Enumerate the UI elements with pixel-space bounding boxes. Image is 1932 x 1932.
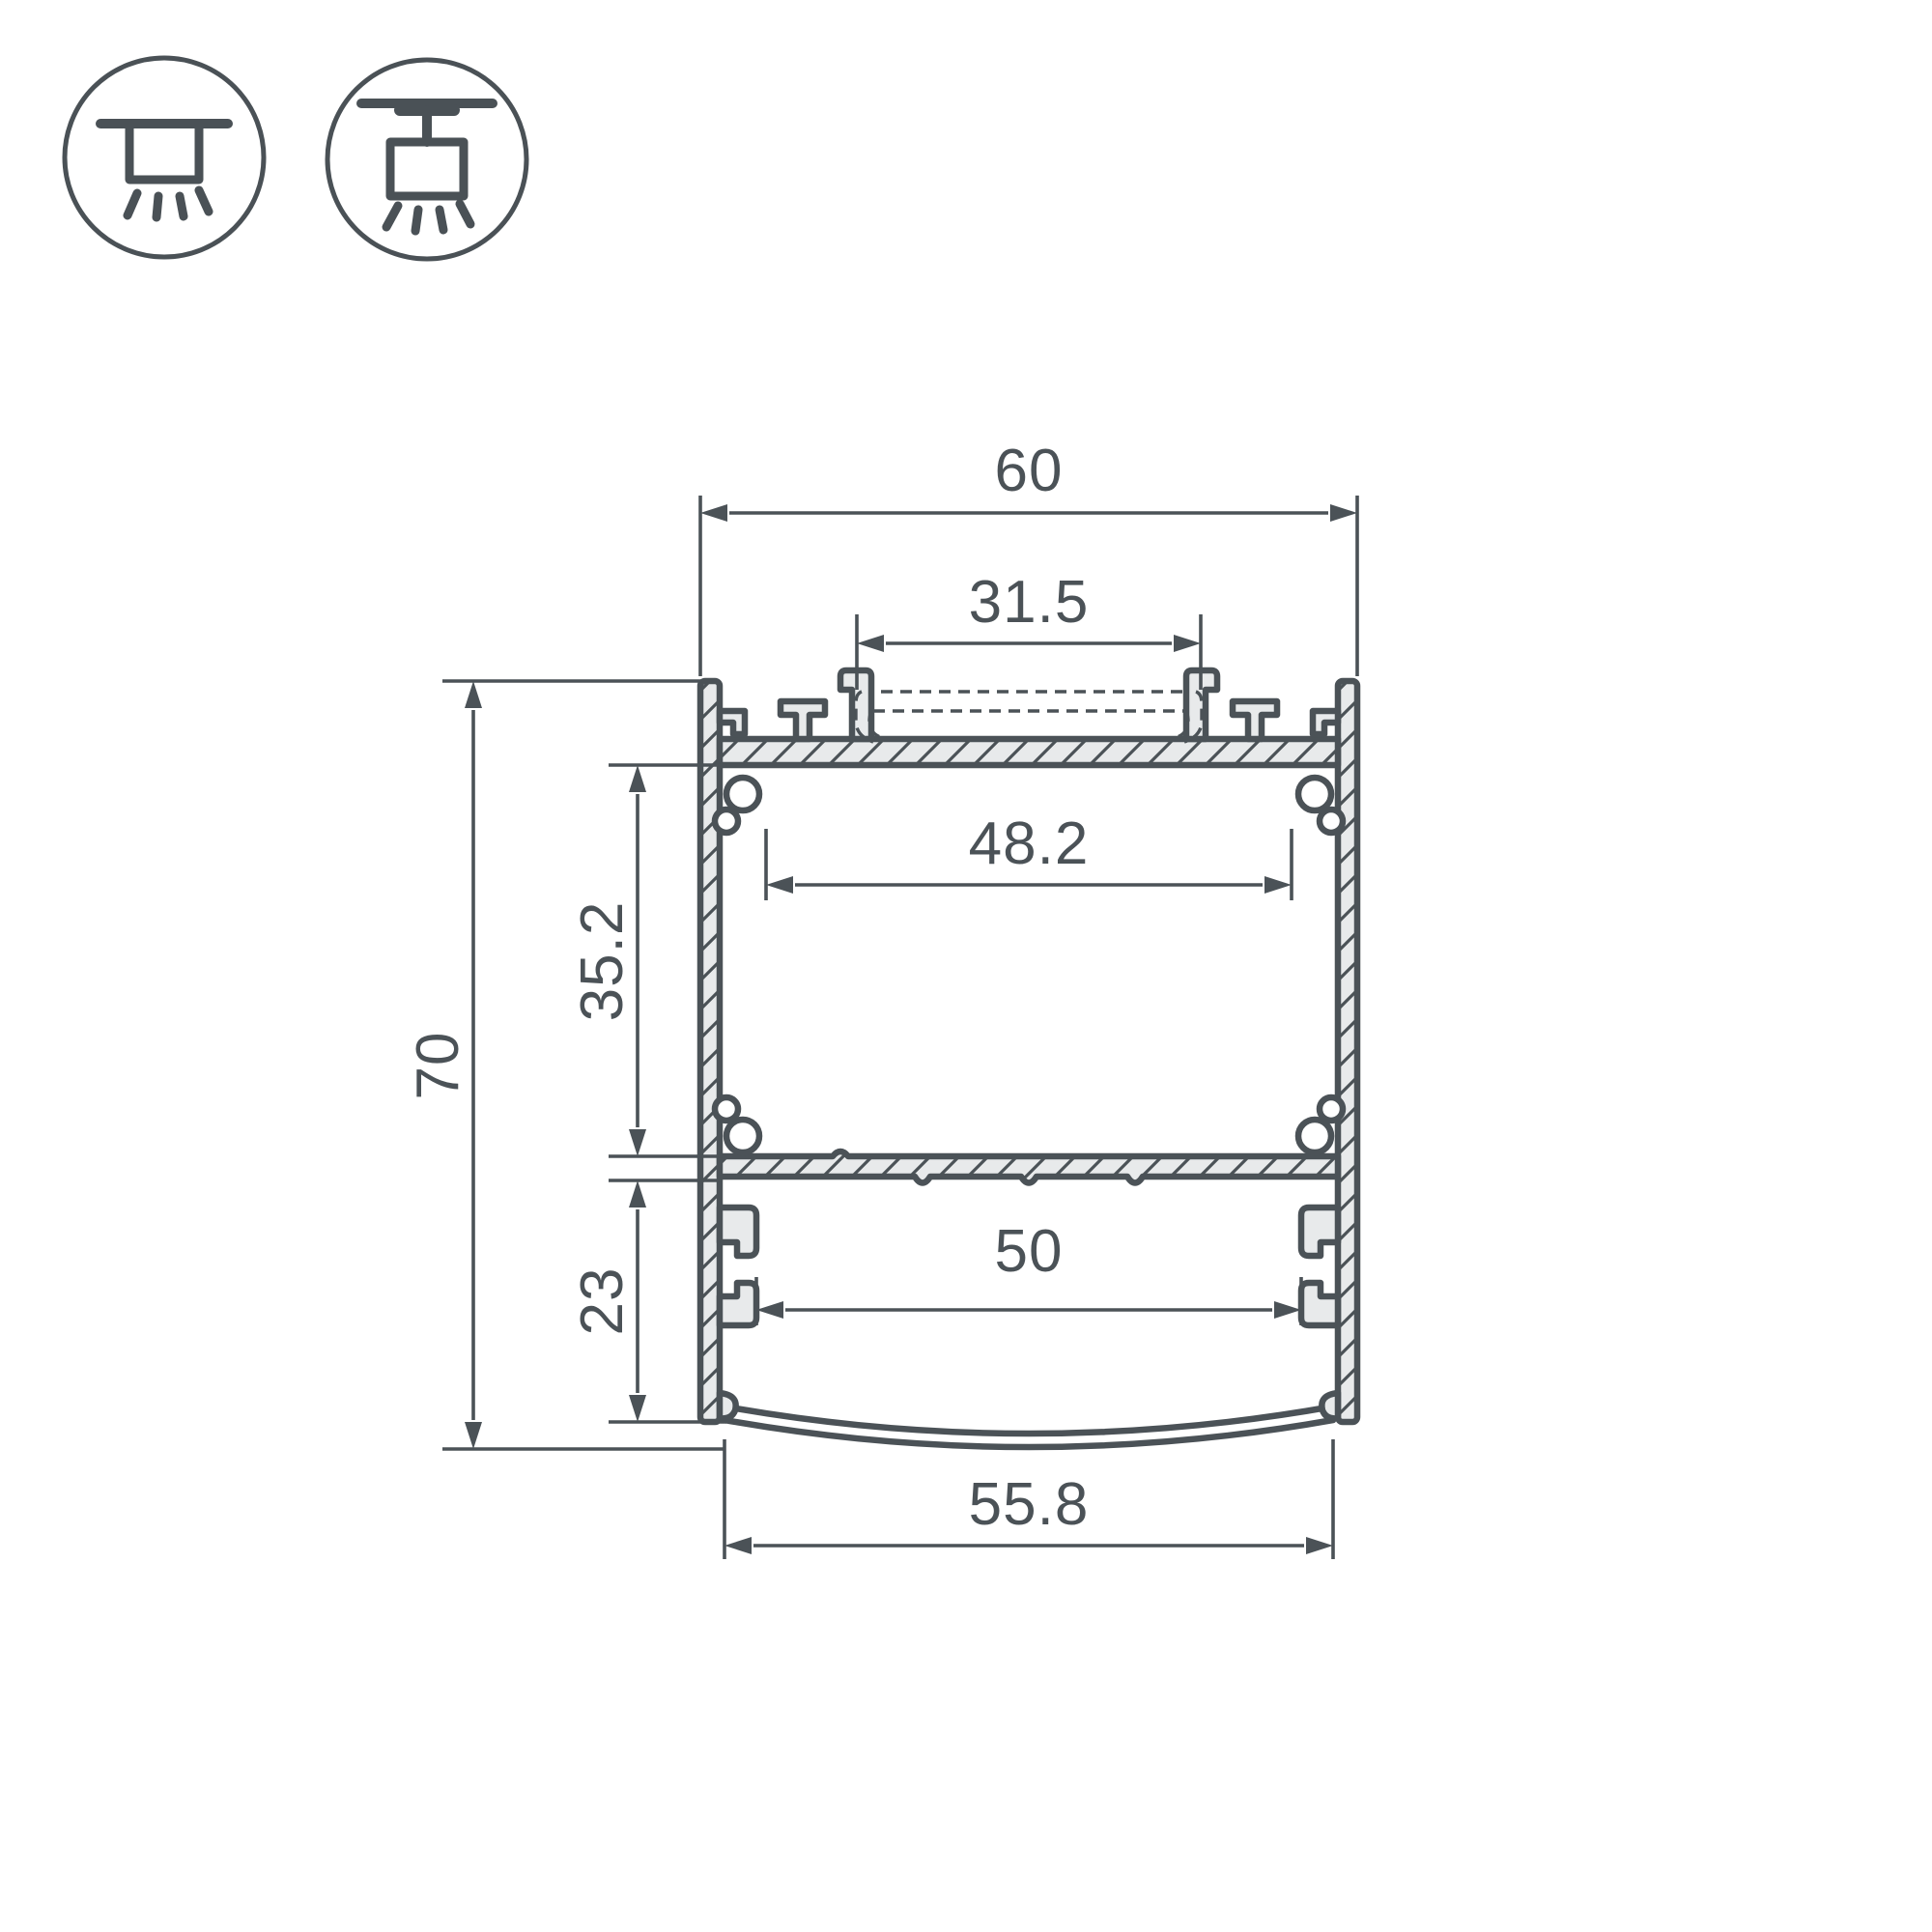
middle-wall: [720, 1151, 1338, 1183]
dimensions: 60 31.5 48.2 50: [405, 438, 1357, 1559]
top-wall: [720, 739, 1338, 765]
dimension-inner-width: 48.2: [766, 810, 1292, 900]
fixture-box: [129, 124, 199, 180]
light-rays: [386, 204, 470, 231]
technical-drawing-svg: 60 31.5 48.2 50: [0, 0, 1932, 1932]
dim-label-50: 50: [995, 1218, 1064, 1285]
dim-label-23: 23: [569, 1267, 636, 1336]
surface-mount-icon: [65, 58, 264, 257]
dimension-lower-slot-width: 50: [756, 1218, 1301, 1325]
dimension-overall-height: 70: [405, 681, 724, 1449]
fixture-box: [390, 142, 464, 196]
dim-label-55-8: 55.8: [969, 1471, 1090, 1538]
profile-cross-section: [700, 670, 1357, 1447]
dim-label-35-2: 35.2: [569, 901, 636, 1022]
icon-circle: [65, 58, 264, 257]
right-side-details: [1175, 670, 1343, 1418]
drawing-page: 60 31.5 48.2 50: [0, 0, 1932, 1932]
mount-icons: [65, 58, 526, 259]
pendant-mount-icon: [327, 60, 526, 259]
icon-circle: [327, 60, 526, 259]
left-side-details: [715, 670, 883, 1418]
dim-label-31-5: 31.5: [969, 569, 1090, 636]
dim-label-70: 70: [405, 1032, 471, 1100]
light-rays: [128, 190, 209, 217]
dim-label-48-2: 48.2: [969, 810, 1090, 877]
dimension-cover-width: 31.5: [857, 569, 1201, 690]
dim-label-60: 60: [995, 438, 1064, 504]
dimension-overall-width: 60: [700, 438, 1357, 676]
dimension-diffuser-width: 55.8: [724, 1439, 1333, 1559]
diffuser: [724, 1406, 1333, 1447]
